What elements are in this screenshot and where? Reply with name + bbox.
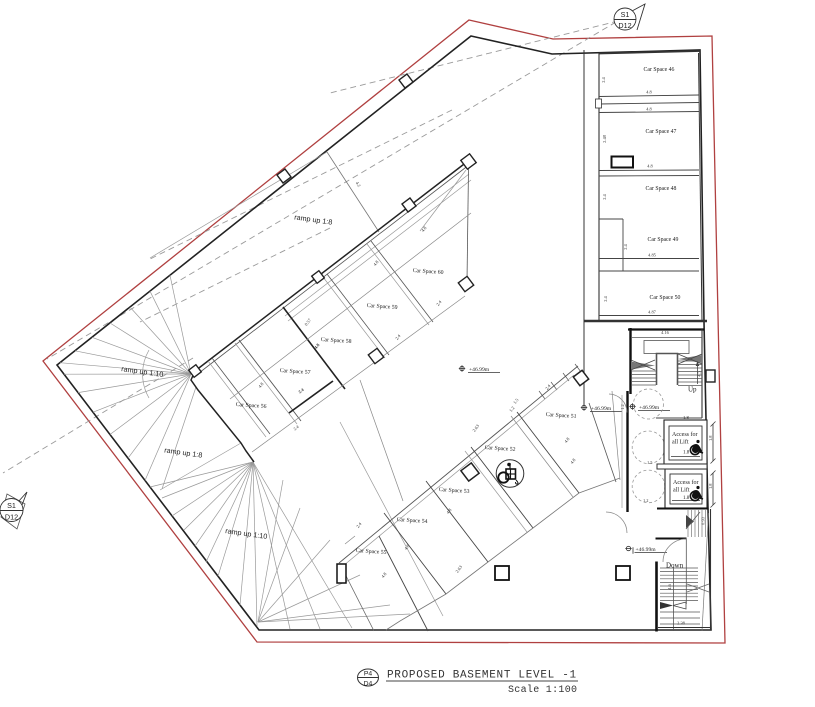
- svg-text:Car Space 47: Car Space 47: [646, 129, 677, 135]
- svg-text:Car Space 48: Car Space 48: [646, 186, 677, 192]
- svg-text:all Lift: all Lift: [673, 487, 690, 494]
- svg-text:Car Space 50: Car Space 50: [650, 295, 681, 301]
- svg-text:1.8: 1.8: [708, 483, 713, 489]
- svg-text:2.4: 2.4: [623, 243, 628, 249]
- svg-text:4.87: 4.87: [648, 310, 656, 315]
- svg-text:Access for: Access for: [672, 431, 698, 438]
- svg-text:1.8: 1.8: [683, 451, 690, 456]
- svg-text:4.85: 4.85: [648, 253, 656, 258]
- svg-text:4.5: 4.5: [697, 370, 702, 376]
- svg-text:4.6: 4.6: [667, 583, 672, 589]
- svg-text:+46.99m: +46.99m: [591, 406, 612, 412]
- svg-text:0.93: 0.93: [701, 516, 706, 524]
- svg-text:1.2: 1.2: [643, 498, 649, 503]
- svg-text:Car Space 46: Car Space 46: [644, 67, 675, 73]
- svg-text:2.48: 2.48: [602, 134, 607, 142]
- svg-text:Down: Down: [666, 562, 684, 570]
- svg-text:+46.99m: +46.99m: [636, 547, 657, 553]
- svg-text:S1: S1: [621, 10, 630, 19]
- svg-text:4.8: 4.8: [646, 90, 652, 95]
- svg-text:Scale 1:100: Scale 1:100: [508, 684, 577, 696]
- svg-text:1.5: 1.5: [647, 460, 653, 465]
- svg-text:1.2: 1.2: [620, 404, 625, 410]
- svg-text:2.4: 2.4: [601, 76, 606, 82]
- svg-text:Access for: Access for: [673, 479, 699, 486]
- svg-text:1.8: 1.8: [683, 415, 689, 420]
- svg-text:D12: D12: [618, 21, 631, 30]
- svg-text:Up: Up: [688, 386, 697, 394]
- svg-text:D4: D4: [364, 681, 373, 688]
- svg-text:4.8: 4.8: [647, 164, 653, 169]
- svg-text:2.4: 2.4: [602, 193, 607, 199]
- svg-text:all Lift: all Lift: [672, 439, 689, 446]
- svg-text:D12: D12: [5, 513, 18, 522]
- svg-text:+46.99m: +46.99m: [639, 405, 660, 411]
- svg-text:Car Space 49: Car Space 49: [648, 237, 679, 243]
- svg-text:2.4: 2.4: [603, 295, 608, 301]
- svg-text:S1: S1: [7, 501, 16, 510]
- svg-text:P4: P4: [364, 671, 373, 678]
- svg-text:1.8: 1.8: [708, 435, 713, 441]
- svg-text:4.16: 4.16: [661, 330, 669, 335]
- svg-text:PROPOSED BASEMENT LEVEL -1: PROPOSED BASEMENT LEVEL -1: [387, 670, 577, 682]
- svg-text:2.38: 2.38: [677, 621, 685, 626]
- svg-text:4.8: 4.8: [646, 107, 652, 112]
- svg-text:+46.99m: +46.99m: [469, 367, 490, 373]
- svg-text:1.8: 1.8: [683, 496, 690, 501]
